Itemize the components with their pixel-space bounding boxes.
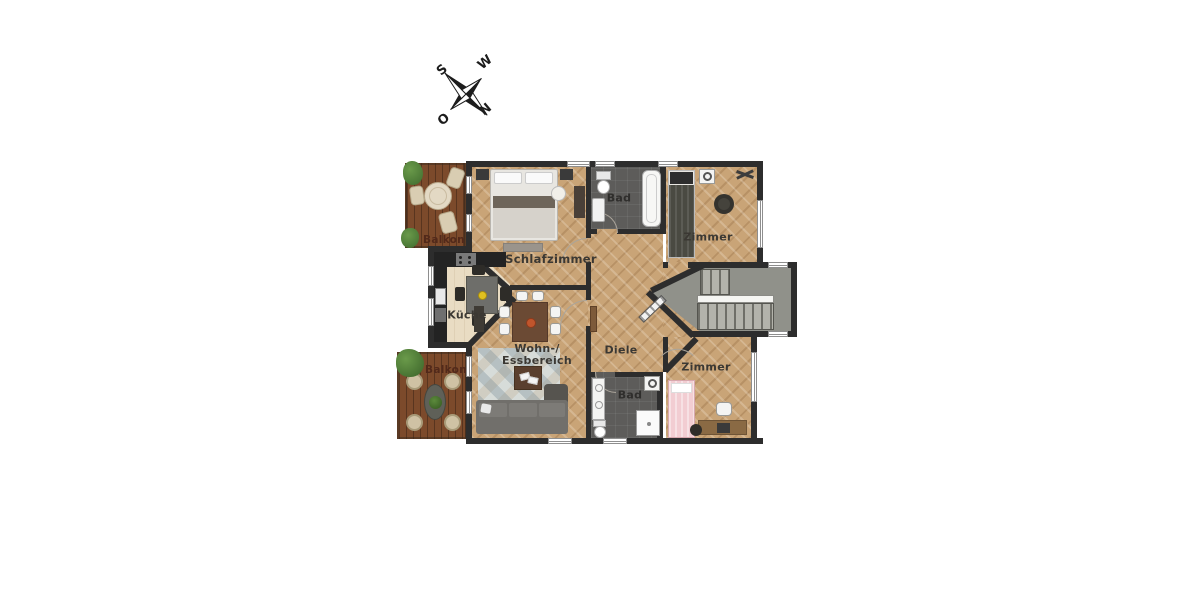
washing-machine-icon <box>644 376 660 391</box>
label-zimmer-bottom: Zimmer <box>681 361 730 374</box>
balcony-table-oval-icon <box>424 384 446 420</box>
burner <box>459 256 462 259</box>
round-stool-icon <box>551 186 566 201</box>
compass-rose: W S N O <box>432 54 500 134</box>
bed-blanket-icon <box>493 208 555 238</box>
laptop-icon <box>717 423 730 433</box>
dark-duvet-icon <box>669 185 694 257</box>
oven-icon <box>435 308 446 322</box>
label-wohn-essbereich: Wohn-/ Essbereich <box>502 343 572 367</box>
window-balcony-top-1 <box>466 176 472 194</box>
table-inner <box>429 187 447 205</box>
kitchen-sink-icon <box>435 288 446 305</box>
wicker-chair-icon <box>406 414 423 431</box>
pillow-icon <box>494 172 522 184</box>
basin <box>595 384 603 392</box>
label-balkon-top: Balkon <box>423 234 465 246</box>
wicker-chair-icon <box>444 414 461 431</box>
book-icon <box>527 376 538 385</box>
dining-chair-icon <box>550 323 561 335</box>
nightstand-left-icon <box>476 169 489 180</box>
window-top-1 <box>567 161 590 167</box>
window-zimmer-top-right <box>757 200 763 248</box>
wall-schlafzimmer-bottom <box>510 285 590 290</box>
chair-seat <box>718 198 730 210</box>
hall-console-icon <box>590 306 597 332</box>
dining-chair-icon <box>516 291 528 301</box>
kitchen-chair-icon <box>472 265 485 275</box>
washing-machine-icon <box>699 169 715 184</box>
window-balcony-top-2 <box>466 214 472 232</box>
wall-stairwell-right <box>791 262 797 337</box>
stairs-lower-run-icon <box>697 303 774 330</box>
bathtub-inner <box>646 174 657 223</box>
dining-chair-icon <box>532 291 544 301</box>
washer-drum <box>648 379 657 388</box>
ceiling-fan-icon <box>736 168 754 180</box>
wall-kitchen-bottom <box>428 342 472 348</box>
dining-chair-icon <box>550 306 561 318</box>
window-balcony-bottom-2 <box>466 391 472 414</box>
wall-diele-wohn-b <box>586 326 591 438</box>
vanity-icon <box>592 378 605 420</box>
burner <box>468 256 471 259</box>
label-schlafzimmer: Schlafzimmer <box>505 252 597 266</box>
label-bad-top: Bad <box>607 192 632 205</box>
shower-icon <box>636 410 660 436</box>
sofa-cushion <box>509 403 537 417</box>
label-balkon-bottom: Balkon <box>425 364 467 376</box>
bed-runner-icon <box>493 196 555 208</box>
plant-icon <box>403 161 423 185</box>
dresser-icon <box>574 186 585 218</box>
bathtub-icon <box>642 170 661 227</box>
double-bed-icon <box>490 169 558 241</box>
balcony-chair-icon <box>409 185 426 206</box>
kitchen-chair-icon <box>455 287 465 301</box>
basin <box>595 401 603 409</box>
floor-plan-page: W S N O <box>0 0 1200 600</box>
wall-bad-top-bottom-b <box>617 229 663 234</box>
coffee-table-icon <box>514 366 542 390</box>
table-centerpiece-icon <box>526 318 536 328</box>
plant-icon <box>396 349 424 377</box>
wall-diele-bad-bottom-a <box>588 372 595 377</box>
toilet-icon <box>594 426 606 438</box>
window-stairwell-top <box>768 262 788 268</box>
sink-icon <box>592 198 605 222</box>
nightstand-right-icon <box>560 169 573 180</box>
label-bad-bottom: Bad <box>618 389 643 402</box>
stairs-upper-run-icon <box>700 269 730 295</box>
flower-centerpiece-icon <box>478 291 487 300</box>
window-bottom-1 <box>548 438 572 444</box>
wall-diele-wohn-a <box>586 288 591 300</box>
window-top-2 <box>595 161 615 167</box>
round-chair-icon <box>714 194 734 214</box>
washer-drum <box>703 172 712 181</box>
compass-letter-east: O <box>435 110 453 129</box>
window-bottom-2 <box>603 438 627 444</box>
burner <box>468 261 471 264</box>
wall-schlafzimmer-bad <box>586 167 591 238</box>
desk-icon <box>698 420 747 435</box>
wall-left-upper <box>466 161 472 252</box>
burner <box>459 261 462 264</box>
bed-bench-icon <box>503 243 543 252</box>
shower-drain <box>647 422 651 426</box>
window-top-3 <box>658 161 678 167</box>
kitchen-counter-left-icon <box>434 267 447 342</box>
label-zimmer-top: Zimmer <box>683 231 732 244</box>
dining-chair-icon <box>499 306 510 318</box>
dining-chair-icon <box>499 323 510 335</box>
single-bed-top-icon <box>668 170 695 258</box>
compass-letter-west: W <box>475 54 496 73</box>
dark-pillow-icon <box>670 172 693 184</box>
sofa-pillow-icon <box>480 403 491 414</box>
window-zimmer-bottom-right <box>751 352 757 402</box>
pillow-icon <box>671 383 692 393</box>
sofa-cushion <box>539 403 565 417</box>
kitchen-counter-top-icon <box>434 252 506 267</box>
label-diele: Diele <box>604 344 637 357</box>
stairs-landing <box>697 295 774 303</box>
plant-centerpiece-icon <box>429 396 442 409</box>
label-wohn-line2: Essbereich <box>502 355 572 367</box>
sofa-icon <box>476 400 568 434</box>
dining-table-icon <box>512 302 548 342</box>
kitchen-chair-icon <box>500 287 510 301</box>
desk-chair-icon <box>716 402 732 416</box>
toilet-tank-icon <box>596 171 611 180</box>
stool-icon <box>690 424 702 436</box>
window-stairwell-bottom <box>768 331 788 337</box>
label-kueche: Küche <box>447 309 486 322</box>
pillow-icon <box>525 172 553 184</box>
